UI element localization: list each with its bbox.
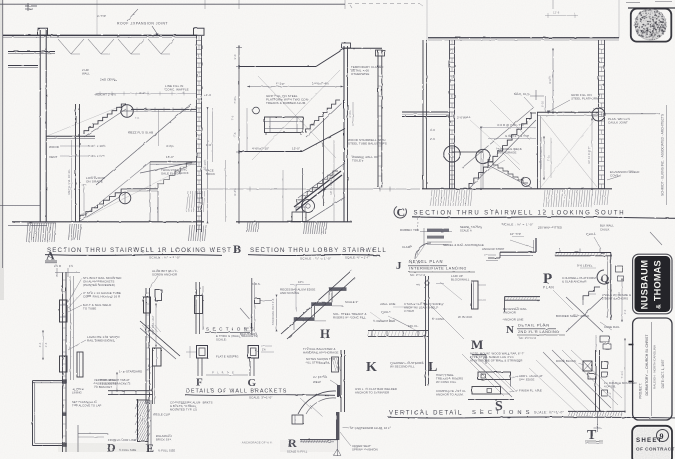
svg-text:FULL HGT BRACKETS: FULL HGT BRACKETS [100, 382, 130, 386]
svg-text:2ND LEVEL: 2ND LEVEL [100, 78, 117, 82]
svg-text:ALL STRINGERS: ALL STRINGERS [306, 361, 329, 365]
svg-text:CAULK JOINT: CAULK JOINT [608, 121, 628, 125]
svg-text:OTHERWISE: OTHERWISE [351, 72, 369, 76]
svg-text:9′-6 LEVEL: 9′-6 LEVEL [577, 264, 593, 268]
svg-text:AND NOSING: AND NOSING [280, 291, 300, 295]
svg-text:2½ R: 2½ R [54, 264, 61, 268]
svg-text:N: N [506, 324, 514, 336]
svg-text:ANGLE CLIP: ANGLE CLIP [153, 413, 170, 417]
svg-text:ROOF EXPANSION JOINT: ROOF EXPANSION JOINT [117, 22, 168, 26]
svg-text:A: A [46, 249, 55, 263]
svg-text:PLAN: PLAN [543, 286, 555, 290]
svg-text:9′-0½: 9′-0½ [548, 76, 552, 84]
svg-text:DATE: OCT. 1, 1957: DATE: OCT. 1, 1957 [661, 359, 665, 388]
svg-text:RAIL DIMENSIONS: RAIL DIMENSIONS [87, 339, 114, 343]
svg-text:UP 17 RISERS: UP 17 RISERS [329, 175, 333, 195]
svg-text:⅛ TYP: ⅛ TYP [97, 14, 106, 18]
svg-text:K.R.S.: K.R.S. [252, 282, 261, 286]
svg-text:MAX. CLG.: MAX. CLG. [514, 92, 531, 96]
svg-text:NEWEL KNOWN: NEWEL KNOWN [460, 225, 482, 229]
svg-text:15′-0″: 15′-0″ [166, 155, 174, 159]
svg-text:B: B [233, 242, 241, 256]
svg-text:ANCHORAGE: ANCHORAGE [497, 151, 517, 155]
svg-text:2 BENT ANCHORS: 2 BENT ANCHORS [602, 297, 628, 301]
svg-text:Q: Q [600, 271, 609, 285]
svg-text:M: M [471, 337, 483, 352]
svg-text:VENT: VENT [49, 155, 57, 159]
svg-text:2′-0: 2′-0 [623, 309, 627, 314]
svg-text:UP 14 R @ 7″: UP 14 R @ 7″ [587, 146, 591, 163]
svg-text:CAULK: CAULK [600, 228, 610, 232]
svg-text:4′-4″: 4′-4″ [139, 91, 145, 95]
svg-text:H: H [320, 326, 331, 341]
svg-text:STEEL TUBE BALUSTERS: STEEL TUBE BALUSTERS [348, 142, 387, 146]
svg-text:SCALE : ¾″ = 1′-0″: SCALE : ¾″ = 1′-0″ [149, 255, 181, 259]
svg-text:10′-10½: 10′-10½ [203, 159, 207, 170]
svg-text:(PAINTED SCREWED): (PAINTED SCREWED) [83, 283, 115, 287]
svg-text:G: G [248, 377, 257, 389]
svg-text:J: J [396, 260, 402, 272]
svg-text:2′-8″ RAIL HGT: 2′-8″ RAIL HGT [151, 315, 155, 334]
svg-text:MECH. RM. 10′-3¾: MECH. RM. 10′-3¾ [67, 169, 71, 195]
svg-text:ANCHOR STRIP: ANCHOR STRIP [482, 247, 504, 251]
svg-text:TO TUBE: TO TUBE [83, 307, 96, 311]
svg-text:WALL: WALL [82, 72, 90, 76]
svg-text:SCALE: ½″ = 1′-0″: SCALE: ½″ = 1′-0″ [345, 256, 370, 260]
svg-text:2′-0 WALL: 2′-0 WALL [457, 116, 471, 120]
svg-text:TREADS & RUBBER ALUM.: TREADS & RUBBER ALUM. [266, 101, 306, 105]
svg-text:7′-10: 7′-10 [547, 154, 551, 161]
svg-text:6′-10″: 6′-10″ [276, 82, 284, 86]
svg-text:7′-6¼: 7′-6¼ [233, 96, 237, 104]
svg-text:4′-0″: 4′-0″ [244, 326, 250, 330]
svg-text:ALCOVE: ALCOVE [72, 387, 84, 391]
svg-text:SCALE ¾: SCALE ¾ [460, 229, 473, 233]
svg-text:RISERS W/ CONC FILL: RISERS W/ CONC FILL [333, 316, 366, 320]
svg-text:BONDED SHELF ROCK: BONDED SHELF ROCK [556, 314, 589, 318]
svg-text:ENLARGED: ENLARGED [156, 434, 172, 438]
svg-text:BLOCKWALL: BLOCKWALL [451, 278, 470, 282]
svg-text:& SLAB ANCHOR: & SLAB ANCHOR [562, 280, 587, 284]
svg-text:FINISH FLOOR LINE: FINISH FLOOR LINE [108, 438, 136, 442]
svg-text:G‌ WALL 7′-1 TYP: G‌ WALL 7′-1 TYP [505, 134, 529, 138]
svg-text:TOILET: TOILET [352, 159, 363, 163]
svg-text:7′-6: 7′-6 [231, 115, 235, 120]
svg-text:1′-6″ STANDARD: 1′-6″ STANDARD [119, 370, 142, 374]
svg-text:SCALE:: SCALE: [216, 338, 227, 342]
svg-text:SPRING CUSHION: SPRING CUSHION [352, 448, 378, 452]
svg-text:1′-6: 1′-6 [206, 143, 211, 147]
svg-text:K: K [366, 360, 377, 375]
svg-text:DETAILS OF WALL BRACKETS: DETAILS OF WALL BRACKETS [186, 389, 287, 395]
svg-text:LINING: LINING [72, 391, 82, 395]
svg-text:& THOMAS: & THOMAS [653, 260, 663, 309]
svg-text:5′-0¾ x 10½: 5′-0¾ x 10½ [88, 144, 106, 148]
svg-text:9′-6¾: 9′-6¾ [348, 110, 352, 118]
svg-text:12′-8: 12′-8 [553, 11, 560, 15]
svg-text:4 DOOR: 4 DOOR [604, 385, 615, 389]
svg-text:CURB RAIL HIGH W/ 16 R: CURB RAIL HIGH W/ 16 R [83, 295, 120, 299]
svg-text:SECTION THRU STAIRWELL 12: SECTION THRU STAIRWELL 12 LOOKING SOUTH [414, 211, 626, 217]
svg-text:SCALE: 3″=1′-0″: SCALE: 3″=1′-0″ [249, 396, 272, 400]
svg-text:CLAMP: CLAMP [402, 245, 412, 249]
svg-text:9: 9 [660, 432, 664, 441]
svg-text:4′-6: 4′-6 [38, 342, 42, 347]
svg-text:7′-1¼: 7′-1¼ [620, 371, 624, 379]
svg-text:7′-10: 7′-10 [617, 291, 621, 298]
svg-text:½ FULL SIZE: ½ FULL SIZE [158, 449, 175, 453]
svg-text:SECTION THRU STAIRWELL 1R: SECTION THRU STAIRWELL 1R LOOKING WEST [47, 247, 232, 254]
svg-text:4½: 4½ [416, 283, 421, 287]
svg-text:5′-0: 5′-0 [233, 54, 237, 59]
svg-text:BALUSTERS: BALUSTERS [240, 332, 257, 336]
svg-text:CASE RAIL: CASE RAIL [604, 325, 620, 329]
svg-text:TOP ALCOVE TO LAP: TOP ALCOVE TO LAP [72, 404, 102, 408]
svg-text:SILL EDGE: SILL EDGE [519, 378, 535, 382]
svg-text:VERTICAL DETAIL: VERTICAL DETAIL [389, 411, 463, 417]
svg-text:STEEL PLATFORM: STEEL PLATFORM [571, 97, 599, 101]
svg-text:SET FLASHING AT: SET FLASHING AT [72, 400, 97, 404]
svg-text:4′-0: 4′-0 [430, 128, 435, 132]
svg-text:· ANCHORAGE OF ⅛ ¼: · ANCHORAGE OF ⅛ ¼ [240, 441, 273, 445]
svg-text:ANCHOR TO STRINGER: ANCHOR TO STRINGER [355, 391, 389, 395]
svg-text:SC: 3″=1′-0: SC: 3″=1′-0 [410, 273, 426, 277]
svg-text:NEWEL PLAN: NEWEL PLAN [409, 259, 443, 264]
svg-text:½ CEMENT BED: ½ CEMENT BED [373, 319, 395, 323]
svg-text:250 WALL FITTED: 250 WALL FITTED [538, 226, 562, 230]
svg-text:STAIR RAIL HGT 2′-8: STAIR RAIL HGT 2′-8 [271, 298, 275, 325]
svg-text:PROJECT:: PROJECT: [639, 383, 643, 399]
svg-text:4′-0¾: 4′-0¾ [166, 144, 174, 148]
svg-text:P L A T E: P L A T E [212, 371, 235, 375]
svg-text:CAULK: CAULK [586, 232, 596, 236]
svg-text:SECTION THRU LOBBY STAIRWEL: SECTION THRU LOBBY STAIRWELL [250, 247, 387, 254]
svg-text:3 HIGH: 3 HIGH [404, 309, 414, 313]
svg-text:ANCHOR TO ALUM.: ANCHOR TO ALUM. [436, 393, 464, 397]
svg-text:9′-4½: 9′-4½ [233, 188, 237, 196]
svg-text:INTERMEDIATE LANDING: INTERMEDIATE LANDING [409, 266, 467, 271]
svg-text:DETAIL PLAN: DETAIL PLAN [518, 323, 550, 328]
svg-text:⅛″ EXTRA: ⅛″ EXTRA [313, 375, 327, 379]
svg-text:AT INTERLINE OF WALL & STRINGE: AT INTERLINE OF WALL & STRINGER [470, 359, 523, 363]
svg-text:W/ CONC FILL: W/ CONC FILL [436, 380, 457, 384]
svg-text:1½: 1½ [69, 264, 74, 268]
svg-text:WELD: WELD [313, 380, 321, 384]
svg-text:4′-6½x7′-10″: 4′-6½x7′-10″ [252, 147, 269, 151]
svg-text:TREADS-RISERS: TREADS-RISERS [539, 147, 543, 170]
svg-text:CONC. WAFFLE: CONC. WAFFLE [165, 88, 189, 92]
svg-text:DORMITORY — CHURCH St. CHRIST: DORMITORY — CHURCH St. CHRIST [645, 334, 649, 396]
svg-text:W. BLOCK: W. BLOCK [458, 315, 472, 319]
svg-text:COVER: COVER [610, 174, 621, 178]
svg-text:BRICK SILL: BRICK SILL [156, 438, 172, 442]
svg-text:10″ TYP: 10″ TYP [510, 232, 521, 236]
svg-text:BLK WALL: BLK WALL [600, 224, 614, 228]
svg-text:2′-6: 2′-6 [430, 137, 435, 141]
svg-text:ANCHOR: ANCHOR [503, 311, 516, 315]
svg-text:MOUNTED TYP. (2): MOUNTED TYP. (2) [170, 408, 197, 412]
svg-text:SCALE : ⅓″ = 1′-0″: SCALE : ⅓″ = 1′-0″ [502, 223, 534, 227]
svg-text:ON GRADE: ON GRADE [86, 180, 103, 184]
svg-text:W/ SECOND FILL: W/ SECOND FILL [390, 365, 415, 369]
svg-text:+1′-0: +1′-0 [204, 93, 211, 97]
svg-text:S E C T I O N S: S E C T I O N S [472, 410, 531, 416]
svg-text:FIN. FL.: FIN. FL. [408, 324, 419, 328]
svg-text:7′-6: 7′-6 [233, 132, 237, 137]
svg-text:FLAT E NOSING: FLAT E NOSING [216, 355, 239, 359]
svg-text:SALE FLOOR: SALE FLOOR [161, 172, 182, 176]
svg-text:2′-0: 2′-0 [608, 392, 612, 397]
svg-text:TO BRACKET: TO BRACKET [94, 385, 112, 389]
svg-text:SCALE 3″: SCALE 3″ [345, 300, 358, 304]
svg-text:HANDRAIL ANCHORAGE: HANDRAIL ANCHORAGE [303, 351, 339, 355]
svg-text:2′-8: 2′-8 [44, 342, 48, 347]
svg-text:6′-10: 6′-10 [541, 100, 545, 107]
svg-text:SC: 1½″=1′-0: SC: 1½″=1′-0 [519, 336, 536, 340]
svg-text:1¾: 1¾ [262, 348, 267, 352]
svg-text:ST CANTERARM ALUM. 16 Lº: ST CANTERARM ALUM. 16 Lº [350, 426, 391, 430]
svg-text:4′-6 R @ 7′-0¾ TYP: 4′-6 R @ 7′-0¾ TYP [497, 123, 524, 127]
svg-text:10½: 10½ [298, 280, 304, 284]
svg-text:OF CONTRACT: OF CONTRACT [636, 447, 675, 452]
svg-text:MEZZ FL’G SLAB: MEZZ FL’G SLAB [128, 131, 153, 135]
svg-text:WALL LINE: WALL LINE [380, 302, 396, 306]
svg-text:FINISH FL. LINE: FINISH FL. LINE [519, 389, 542, 393]
svg-text:ANCHOR LINE: ANCHOR LINE [503, 318, 524, 322]
svg-text:T.O.: T.O. [135, 117, 140, 120]
svg-text:2ND FL’R LANDING: 2ND FL’R LANDING [518, 330, 560, 334]
svg-text:WITH ATTACH TAB AT: WITH ATTACH TAB AT [100, 378, 130, 382]
svg-text:WOOD: WOOD [49, 145, 60, 149]
svg-text:7′-6¾ x 10¾: 7′-6¾ x 10¾ [88, 154, 106, 158]
svg-text:RALEIGH · NORTH CAROLINA: RALEIGH · NORTH CAROLINA [653, 344, 657, 389]
svg-text:SCALE: ½″=1′-0″: SCALE: ½″=1′-0″ [534, 411, 565, 415]
svg-text:SCREW ANCHOR: SCREW ANCHOR [152, 273, 177, 277]
svg-text:DOOR BLOCK: DOOR BLOCK [556, 359, 576, 363]
svg-text:15′-0″: 15′-0″ [292, 147, 300, 151]
svg-text:NUSBAUM: NUSBAUM [640, 260, 650, 310]
svg-text:F: F [196, 377, 203, 389]
svg-text:NEWEL & RAIL ANCHORAGE: NEWEL & RAIL ANCHORAGE [443, 243, 484, 247]
svg-text:-HEIGHT 2′-6½: -HEIGHT 2′-6½ [94, 93, 116, 97]
svg-text:RUBBER TRD: RUBBER TRD [400, 228, 419, 232]
svg-text:SCALE : ½″ = 1′-0″: SCALE : ½″ = 1′-0″ [300, 257, 332, 261]
svg-text:SCHMIDT - ELKINS INC. · ASSOC: SCHMIDT - ELKINS INC. · ASSOCIATED - ARC… [661, 114, 665, 196]
svg-text:CAULK: CAULK [381, 310, 391, 314]
